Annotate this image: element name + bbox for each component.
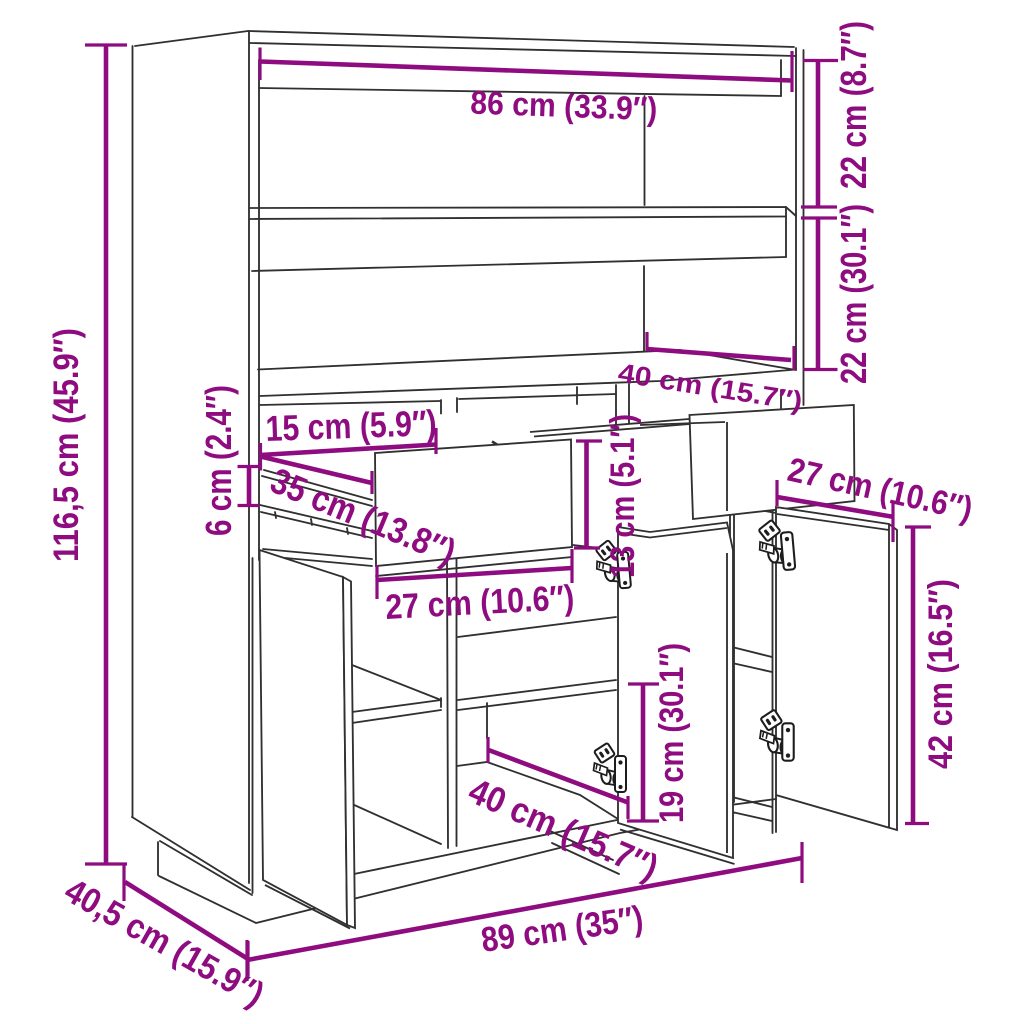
svg-text:89 cm (35″): 89 cm (35″) xyxy=(479,899,646,960)
svg-text:22 cm (30.1″): 22 cm (30.1″) xyxy=(833,204,874,384)
svg-text:15 cm (5.9″): 15 cm (5.9″) xyxy=(265,402,437,449)
svg-text:86 cm (33.9″): 86 cm (33.9″) xyxy=(470,84,658,128)
svg-text:116,5 cm (45.9″): 116,5 cm (45.9″) xyxy=(47,328,86,562)
svg-text:13 cm (5.1″): 13 cm (5.1″) xyxy=(604,414,642,578)
svg-text:40,5 cm (15.9″): 40,5 cm (15.9″) xyxy=(58,871,270,1014)
svg-text:6 cm (2.4″): 6 cm (2.4″) xyxy=(198,385,239,536)
svg-text:19 cm (30.1″): 19 cm (30.1″) xyxy=(653,643,691,823)
svg-text:22 cm (8.7″): 22 cm (8.7″) xyxy=(833,21,874,189)
svg-text:42 cm (16.5″): 42 cm (16.5″) xyxy=(922,579,960,769)
svg-text:27 cm (10.6″): 27 cm (10.6″) xyxy=(384,578,575,627)
